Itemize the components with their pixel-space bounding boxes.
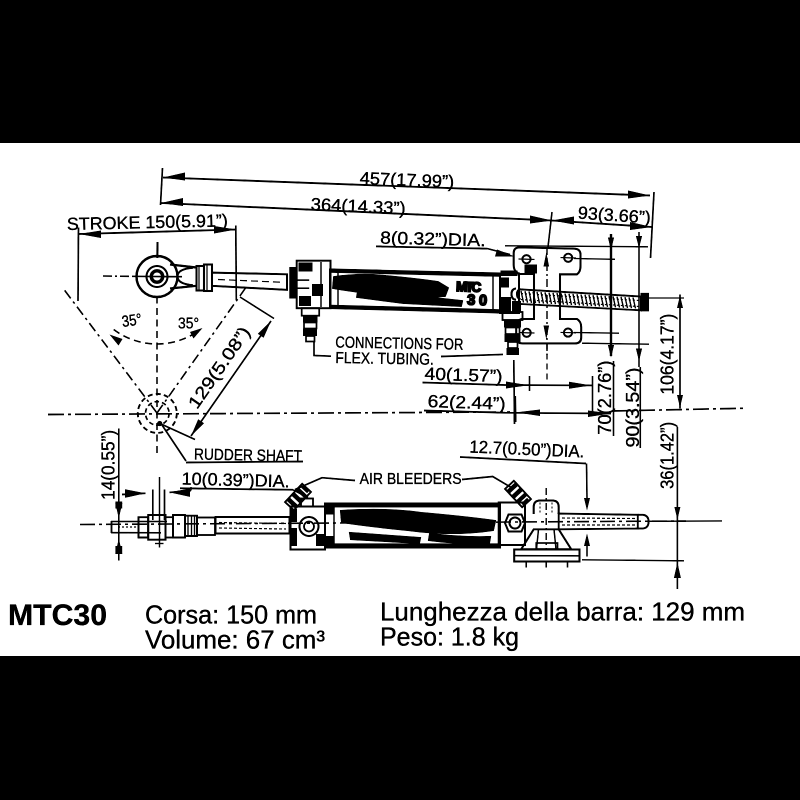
svg-text:MTC30: MTC30 bbox=[8, 599, 107, 632]
svg-text:RUDDER SHAFT: RUDDER SHAFT bbox=[194, 447, 302, 466]
svg-text:Volume: 67 cm³: Volume: 67 cm³ bbox=[145, 625, 325, 655]
svg-text:70(2.76”): 70(2.76”) bbox=[595, 361, 615, 435]
svg-text:STROKE 150(5.91”): STROKE 150(5.91”) bbox=[67, 210, 228, 234]
svg-text:FLEX. TUBING.: FLEX. TUBING. bbox=[335, 350, 434, 369]
svg-text:Peso: 1.8 kg: Peso: 1.8 kg bbox=[380, 622, 519, 652]
svg-text:AIR BLEEDERS: AIR BLEEDERS bbox=[360, 471, 462, 488]
svg-text:36(1.42”): 36(1.42”) bbox=[658, 422, 678, 489]
svg-text:14(0.55”): 14(0.55”) bbox=[99, 430, 119, 500]
svg-text:10(0.39”)DIA.: 10(0.39”)DIA. bbox=[181, 469, 289, 492]
svg-text:90(3.54”): 90(3.54”) bbox=[623, 368, 643, 448]
svg-text:8(0.32”)DIA.: 8(0.32”)DIA. bbox=[380, 228, 486, 251]
svg-text:35°: 35° bbox=[178, 316, 199, 333]
svg-text:106(4.17”): 106(4.17”) bbox=[658, 314, 678, 395]
svg-text:40(1.57”): 40(1.57”) bbox=[424, 364, 503, 387]
svg-text:457(17.99”): 457(17.99”) bbox=[359, 168, 454, 192]
svg-text:35°: 35° bbox=[121, 311, 143, 331]
svg-text:62(2.44”): 62(2.44”) bbox=[427, 391, 506, 414]
